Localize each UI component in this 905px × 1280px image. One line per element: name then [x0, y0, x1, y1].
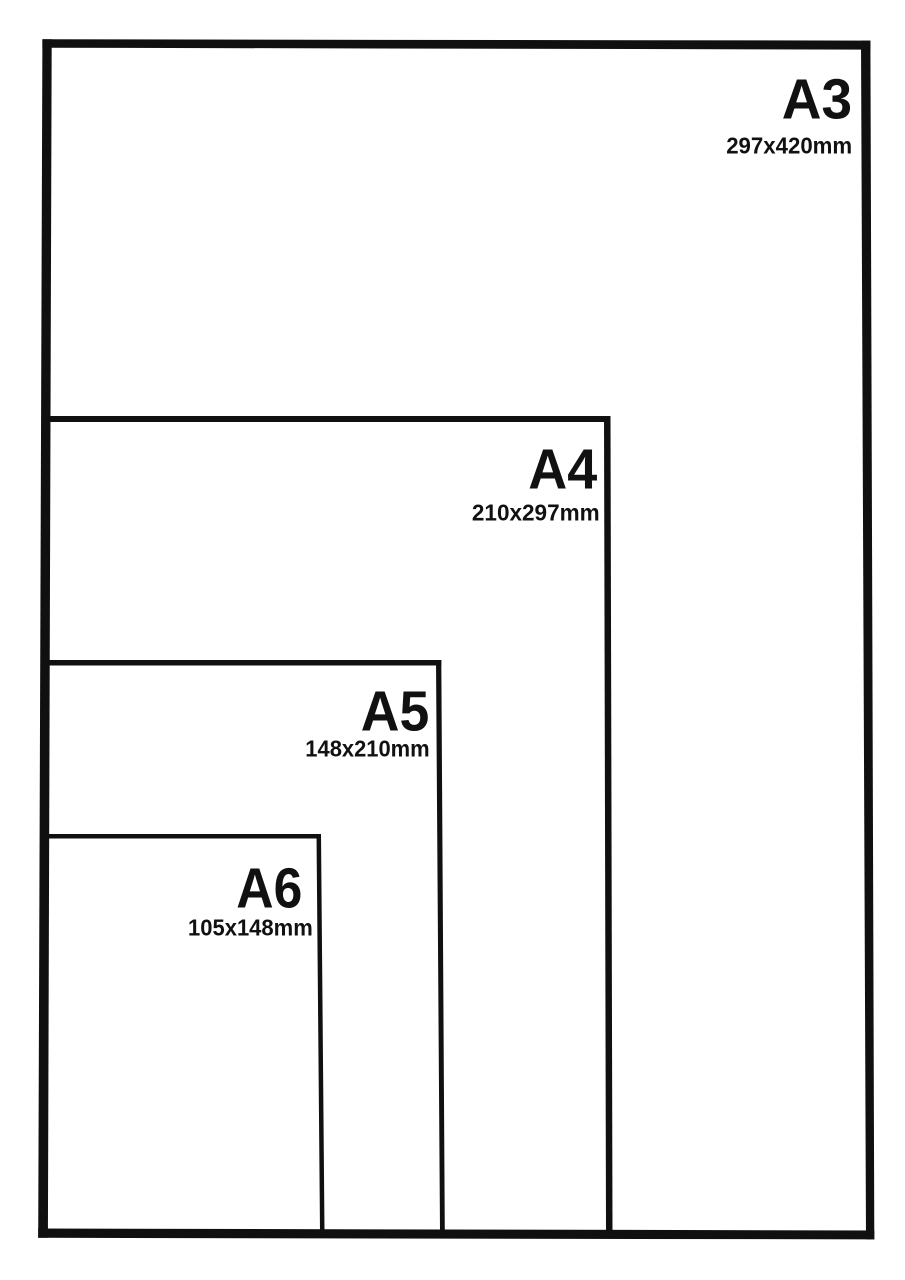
svg-text:210x297mm: 210x297mm [472, 500, 600, 526]
svg-text:105x148mm: 105x148mm [188, 915, 313, 941]
svg-text:297x420mm: 297x420mm [726, 133, 852, 159]
svg-text:A4: A4 [528, 438, 597, 502]
svg-text:A3: A3 [782, 68, 852, 132]
svg-text:A6: A6 [236, 857, 302, 921]
svg-text:148x210mm: 148x210mm [305, 736, 429, 762]
svg-text:A5: A5 [361, 680, 430, 744]
